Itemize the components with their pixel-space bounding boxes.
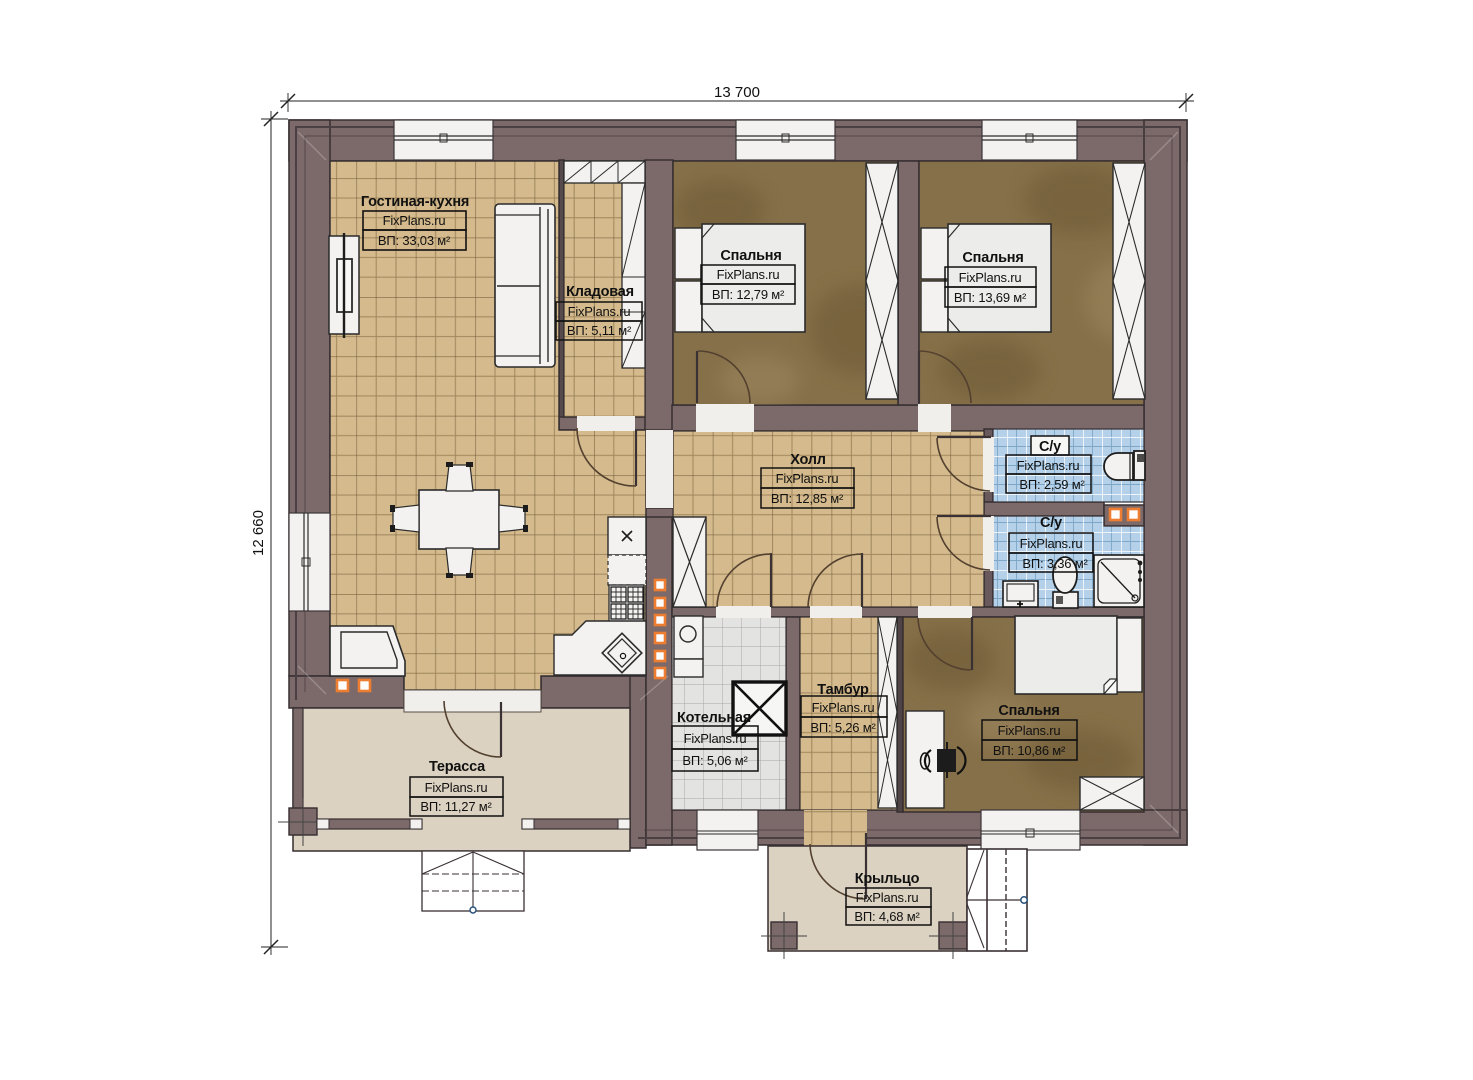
svg-text:Спальня: Спальня: [962, 250, 1023, 266]
svg-text:ВП: 13,69 м²: ВП: 13,69 м²: [954, 290, 1027, 305]
svg-text:ВП: 4,68 м²: ВП: 4,68 м²: [854, 909, 920, 924]
svg-text:ВП: 12,85 м²: ВП: 12,85 м²: [771, 491, 844, 506]
svg-text:Крыльцо: Крыльцо: [855, 871, 920, 887]
svg-text:FixPlans.ru: FixPlans.ru: [959, 270, 1022, 285]
svg-text:ВП: 33,03 м²: ВП: 33,03 м²: [378, 233, 451, 248]
svg-text:ВП: 5,11 м²: ВП: 5,11 м²: [567, 323, 632, 338]
svg-text:ВП: 3,36 м²: ВП: 3,36 м²: [1022, 556, 1088, 571]
svg-text:FixPlans.ru: FixPlans.ru: [1017, 458, 1080, 473]
svg-text:FixPlans.ru: FixPlans.ru: [998, 723, 1061, 738]
svg-text:ВП: 12,79 м²: ВП: 12,79 м²: [712, 287, 785, 302]
svg-text:FixPlans.ru: FixPlans.ru: [812, 700, 875, 715]
svg-text:FixPlans.ru: FixPlans.ru: [684, 731, 747, 746]
svg-text:Гостиная-кухня: Гостиная-кухня: [361, 194, 469, 210]
svg-text:С/у: С/у: [1039, 439, 1061, 455]
svg-text:FixPlans.ru: FixPlans.ru: [425, 780, 488, 795]
svg-text:Котельная: Котельная: [677, 710, 751, 726]
svg-text:FixPlans.ru: FixPlans.ru: [383, 213, 446, 228]
svg-text:ВП: 5,06 м²: ВП: 5,06 м²: [682, 753, 748, 768]
svg-text:FixPlans.ru: FixPlans.ru: [1020, 536, 1083, 551]
svg-text:FixPlans.ru: FixPlans.ru: [717, 267, 780, 282]
svg-text:С/у: С/у: [1040, 515, 1062, 531]
svg-text:Кладовая: Кладовая: [566, 284, 634, 300]
svg-text:Холл: Холл: [790, 452, 826, 468]
svg-text:ВП: 5,26 м²: ВП: 5,26 м²: [810, 720, 876, 735]
svg-text:FixPlans.ru: FixPlans.ru: [568, 304, 631, 319]
svg-text:ВП: 11,27 м²: ВП: 11,27 м²: [420, 799, 492, 814]
svg-text:ВП: 10,86 м²: ВП: 10,86 м²: [993, 743, 1066, 758]
svg-text:ВП: 2,59 м²: ВП: 2,59 м²: [1019, 477, 1085, 492]
svg-text:FixPlans.ru: FixPlans.ru: [776, 471, 839, 486]
svg-text:Спальня: Спальня: [998, 703, 1059, 719]
svg-text:13 700: 13 700: [714, 84, 760, 101]
svg-text:12 660: 12 660: [250, 510, 267, 556]
svg-text:FixPlans.ru: FixPlans.ru: [856, 890, 919, 905]
svg-text:Спальня: Спальня: [720, 248, 781, 264]
svg-text:Терасса: Терасса: [429, 759, 486, 775]
